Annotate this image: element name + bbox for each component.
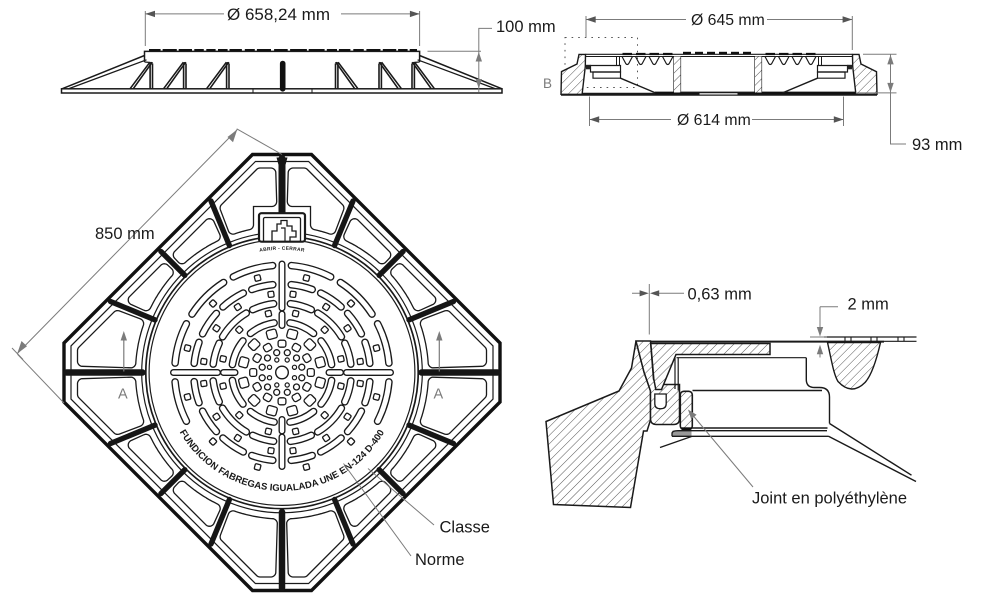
svg-text:Ø 645 mm: Ø 645 mm	[691, 12, 765, 29]
svg-text:2 mm: 2 mm	[848, 296, 889, 314]
svg-text:A: A	[118, 387, 128, 403]
svg-text:B: B	[543, 76, 552, 91]
svg-text:Classe: Classe	[440, 519, 490, 537]
svg-text:Norme: Norme	[415, 551, 465, 569]
svg-text:93 mm: 93 mm	[912, 136, 962, 154]
svg-text:Ø 658,24 mm: Ø 658,24 mm	[227, 5, 330, 24]
svg-text:A: A	[434, 387, 444, 403]
svg-text:Joint en polyéthylène: Joint en polyéthylène	[752, 490, 907, 508]
svg-text:100 mm: 100 mm	[496, 18, 556, 36]
svg-text:850 mm: 850 mm	[95, 225, 155, 243]
svg-text:0,63 mm: 0,63 mm	[688, 286, 752, 304]
svg-text:Ø 614 mm: Ø 614 mm	[677, 112, 751, 129]
